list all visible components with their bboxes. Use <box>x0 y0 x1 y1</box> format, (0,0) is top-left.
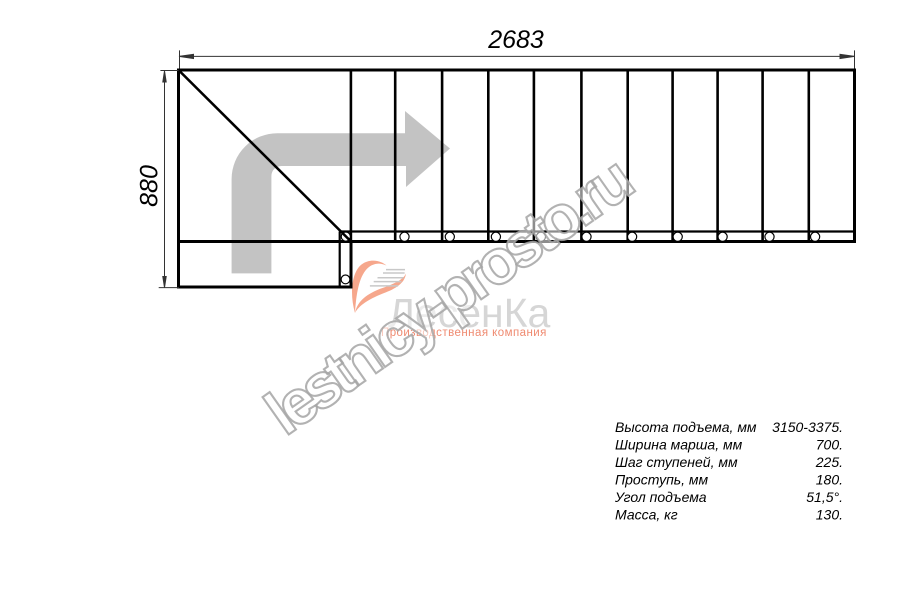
svg-text:225.: 225. <box>815 454 843 470</box>
svg-text:130.: 130. <box>816 507 843 523</box>
svg-text:180.: 180. <box>816 472 843 488</box>
svg-text:51,5°.: 51,5°. <box>806 489 843 505</box>
svg-text:2683: 2683 <box>487 26 544 54</box>
svg-text:Масса, кг: Масса, кг <box>615 507 678 523</box>
svg-text:lestnicy-prosto.ru: lestnicy-prosto.ru <box>253 145 644 449</box>
svg-text:Ширина марша, мм: Ширина марша, мм <box>615 437 743 453</box>
svg-text:Высота подъема, мм: Высота подъема, мм <box>615 419 757 435</box>
svg-text:Шаг ступеней, мм: Шаг ступеней, мм <box>615 454 738 470</box>
svg-text:700.: 700. <box>816 437 843 453</box>
svg-text:Проступь, мм: Проступь, мм <box>615 472 709 488</box>
svg-text:Угол подъема: Угол подъема <box>614 489 707 505</box>
svg-text:3150-3375.: 3150-3375. <box>772 419 843 435</box>
svg-text:880: 880 <box>136 165 164 207</box>
